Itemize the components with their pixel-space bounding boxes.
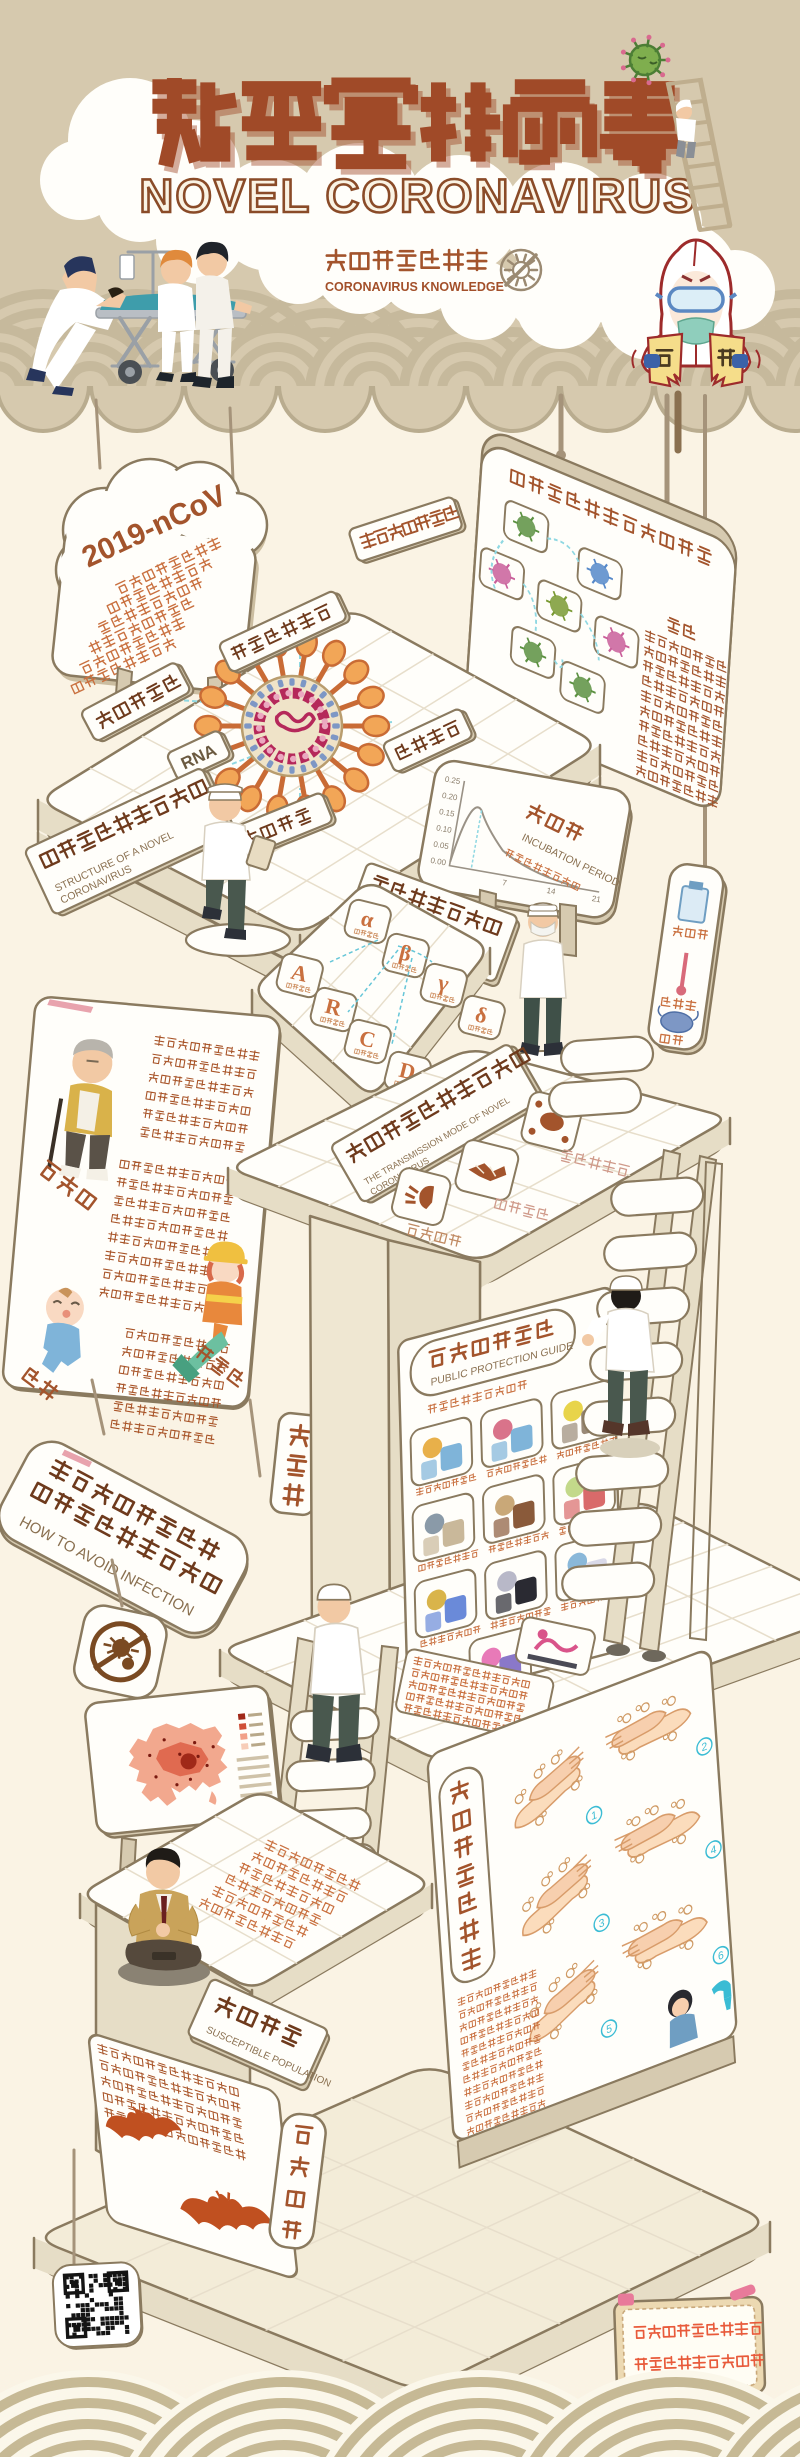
svg-text:3: 3 [598,1917,605,1931]
svg-text:NOVEL CORONAVIRUS: NOVEL CORONAVIRUS [139,169,696,222]
svg-text:6: 6 [718,1949,725,1963]
svg-text:5: 5 [606,2022,613,2036]
svg-text:2: 2 [701,1740,708,1754]
svg-text:CORONAVIRUS KNOWLEDGE: CORONAVIRUS KNOWLEDGE [325,280,504,294]
svg-text:1: 1 [591,1809,598,1823]
svg-text:4: 4 [710,1843,717,1857]
